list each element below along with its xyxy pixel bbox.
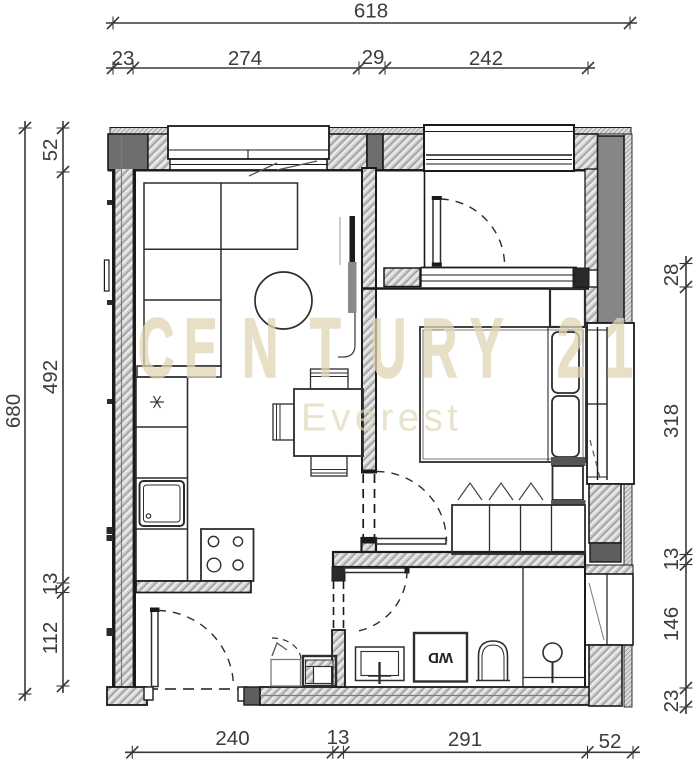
svg-text:112: 112 [39, 622, 62, 655]
svg-text:291: 291 [448, 728, 482, 751]
svg-text:CENTURY 21: CENTURY 21 [138, 301, 633, 396]
svg-text:Everest: Everest [301, 397, 462, 440]
svg-text:618: 618 [354, 0, 388, 23]
svg-text:146: 146 [660, 607, 683, 641]
svg-text:242: 242 [469, 47, 503, 70]
svg-text:318: 318 [660, 404, 683, 438]
svg-text:23: 23 [660, 690, 683, 713]
svg-text:52: 52 [39, 139, 62, 162]
svg-text:13: 13 [327, 726, 350, 749]
svg-text:13: 13 [39, 573, 62, 596]
svg-text:274: 274 [228, 47, 262, 70]
svg-text:680: 680 [2, 394, 25, 428]
svg-text:240: 240 [215, 727, 249, 750]
svg-text:492: 492 [39, 360, 62, 394]
svg-text:23: 23 [112, 47, 135, 70]
svg-text:28: 28 [660, 264, 683, 287]
svg-text:WD: WD [428, 649, 453, 666]
svg-text:52: 52 [599, 730, 622, 753]
svg-text:13: 13 [660, 548, 683, 571]
svg-text:29: 29 [362, 46, 385, 69]
